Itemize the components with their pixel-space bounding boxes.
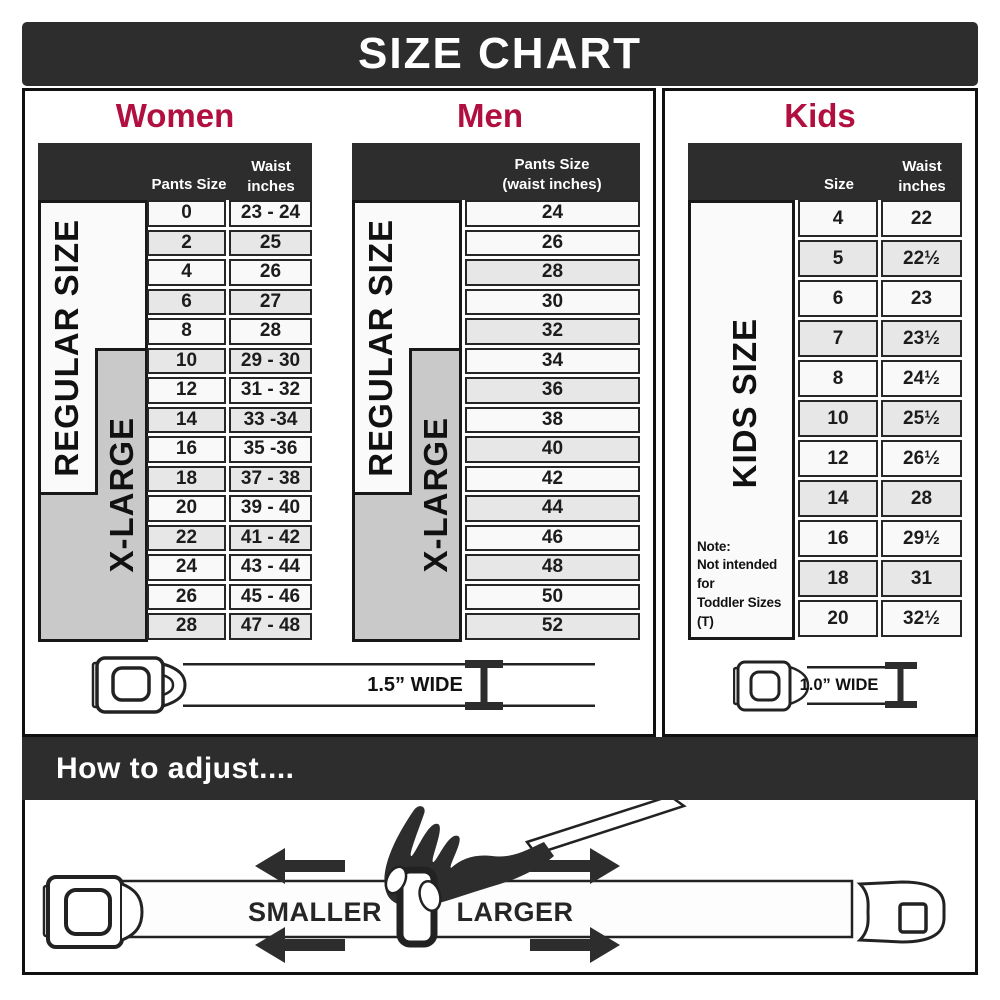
- toddler-note: Note: Not intended for Toddler Sizes (T): [697, 538, 789, 632]
- size-cell: 6: [147, 289, 226, 316]
- size-cell: 32: [465, 318, 640, 345]
- size-cell: 14: [147, 407, 226, 434]
- width-measure-icon: [885, 662, 917, 708]
- table-row: 18 37 - 38: [147, 466, 312, 493]
- table-row: 40: [465, 436, 640, 463]
- size-chart-page: SIZE CHART Women Men Kids Pants Size Wai…: [0, 0, 1000, 1000]
- table-row: 36: [465, 377, 640, 404]
- size-cell: 48: [465, 554, 640, 581]
- waist-cell: 22: [881, 200, 962, 237]
- women-table-header: Pants Size Waist inches: [38, 143, 312, 200]
- kids-table-header: Size Waist inches: [688, 143, 962, 200]
- table-row: 50: [465, 584, 640, 611]
- size-cell: 5: [798, 240, 878, 277]
- size-cell: 7: [798, 320, 878, 357]
- buckle-window: [113, 668, 149, 700]
- waist-cell: 43 - 44: [229, 554, 312, 581]
- size-cell: 42: [465, 466, 640, 493]
- size-cell: 20: [147, 495, 226, 522]
- table-row: 44: [465, 495, 640, 522]
- waist-cell: 32½: [881, 600, 962, 637]
- table-row: 6 23: [798, 280, 962, 317]
- women-heading: Women: [60, 99, 290, 132]
- size-cell: 44: [465, 495, 640, 522]
- table-row: 28: [465, 259, 640, 286]
- size-cell: 4: [147, 259, 226, 286]
- size-cell: 12: [147, 377, 226, 404]
- size-cell: 8: [798, 360, 878, 397]
- table-row: 12 31 - 32: [147, 377, 312, 404]
- table-row: 18 31: [798, 560, 962, 597]
- women-col-waist: Waist inches: [229, 157, 313, 196]
- table-row: 42: [465, 466, 640, 493]
- men-table-header: Pants Size (waist inches): [352, 143, 640, 200]
- page-title: SIZE CHART: [358, 29, 642, 79]
- waist-cell: 25½: [881, 400, 962, 437]
- kids-table-rows: 4 22 5 22½ 6 23 7 23½ 8 24½ 10 25½ 12 26…: [798, 200, 962, 640]
- table-row: 20 32½: [798, 600, 962, 637]
- larger-label: LARGER: [455, 897, 575, 928]
- table-row: 4 22: [798, 200, 962, 237]
- arrow-left-icon: [255, 848, 345, 884]
- size-cell: 10: [147, 348, 226, 375]
- women-xlarge-region-top: [95, 348, 148, 495]
- size-cell: 22: [147, 525, 226, 552]
- women-table-rows: 0 23 - 24 2 25 4 26 6 27 8 28 10 29 - 30…: [147, 200, 312, 643]
- waist-cell: 35 -36: [229, 436, 312, 463]
- men-heading: Men: [375, 99, 605, 132]
- pulled-strap: [527, 800, 684, 854]
- kids-size-label: KIDS SIZE: [726, 318, 764, 488]
- waist-cell: 45 - 46: [229, 584, 312, 611]
- women-regular-region-bottom: [38, 348, 95, 495]
- kids-belt-width-label: 1.0” WIDE: [798, 676, 880, 695]
- table-row: 26 45 - 46: [147, 584, 312, 611]
- size-cell: 10: [798, 400, 878, 437]
- waist-cell: 27: [229, 289, 312, 316]
- size-cell: 18: [147, 466, 226, 493]
- buckle-window: [66, 890, 110, 934]
- table-row: 22 41 - 42: [147, 525, 312, 552]
- size-cell: 6: [798, 280, 878, 317]
- size-cell: 50: [465, 584, 640, 611]
- size-cell: 52: [465, 613, 640, 640]
- table-row: 24 43 - 44: [147, 554, 312, 581]
- size-cell: 16: [147, 436, 226, 463]
- table-row: 28 47 - 48: [147, 613, 312, 640]
- size-cell: 26: [147, 584, 226, 611]
- table-row: 52: [465, 613, 640, 640]
- waist-cell: 31 - 32: [229, 377, 312, 404]
- women-col-pants-size: Pants Size: [139, 175, 239, 195]
- table-row: 2 25: [147, 230, 312, 257]
- kids-col-waist: Waist inches: [882, 157, 962, 196]
- women-regular-region-top: [38, 200, 148, 348]
- size-cell: 8: [147, 318, 226, 345]
- table-row: 20 39 - 40: [147, 495, 312, 522]
- size-cell: 36: [465, 377, 640, 404]
- strap-bottom-edge: [183, 705, 595, 708]
- waist-cell: 41 - 42: [229, 525, 312, 552]
- tongue-slot: [900, 904, 926, 932]
- size-cell: 18: [798, 560, 878, 597]
- waist-cell: 39 - 40: [229, 495, 312, 522]
- waist-cell: 29 - 30: [229, 348, 312, 375]
- men-xlarge-region-top: [409, 348, 462, 495]
- kids-heading: Kids: [700, 99, 940, 132]
- table-row: 26: [465, 230, 640, 257]
- adjust-belt-illustration: [22, 800, 978, 975]
- smaller-label: SMALLER: [248, 897, 368, 928]
- table-row: 16 29½: [798, 520, 962, 557]
- waist-cell: 29½: [881, 520, 962, 557]
- adult-belt-width-label: 1.5” WIDE: [363, 674, 467, 697]
- title-bar: SIZE CHART: [22, 22, 978, 86]
- waist-cell: 28: [229, 318, 312, 345]
- size-cell: 24: [147, 554, 226, 581]
- waist-cell: 33 -34: [229, 407, 312, 434]
- table-row: 10 29 - 30: [147, 348, 312, 375]
- size-cell: 2: [147, 230, 226, 257]
- kids-size-label-box: KIDS SIZE Note: Not intended for Toddler…: [688, 200, 795, 640]
- width-measure-icon: [465, 660, 503, 710]
- size-cell: 28: [465, 259, 640, 286]
- table-row: 8 28: [147, 318, 312, 345]
- table-row: 34: [465, 348, 640, 375]
- table-row: 48: [465, 554, 640, 581]
- table-row: 10 25½: [798, 400, 962, 437]
- table-row: 32: [465, 318, 640, 345]
- table-row: 6 27: [147, 289, 312, 316]
- men-regular-region-bottom: [352, 348, 409, 495]
- size-cell: 40: [465, 436, 640, 463]
- table-row: 5 22½: [798, 240, 962, 277]
- waist-cell: 23: [881, 280, 962, 317]
- buckle-window: [751, 672, 779, 700]
- size-cell: 12: [798, 440, 878, 477]
- size-cell: 4: [798, 200, 878, 237]
- how-to-adjust-bar: How to adjust....: [22, 737, 978, 800]
- table-row: 24: [465, 200, 640, 227]
- adult-belt-illustration: [90, 652, 610, 718]
- table-row: 16 35 -36: [147, 436, 312, 463]
- waist-cell: 23½: [881, 320, 962, 357]
- waist-cell: 28: [881, 480, 962, 517]
- men-col-pants-size: Pants Size (waist inches): [472, 155, 632, 194]
- men-regular-region-top: [352, 200, 462, 348]
- kids-col-size: Size: [799, 175, 879, 195]
- waist-cell: 22½: [881, 240, 962, 277]
- table-row: 8 24½: [798, 360, 962, 397]
- waist-cell: 37 - 38: [229, 466, 312, 493]
- size-cell: 0: [147, 200, 226, 227]
- table-row: 46: [465, 525, 640, 552]
- table-row: 4 26: [147, 259, 312, 286]
- size-cell: 20: [798, 600, 878, 637]
- table-row: 7 23½: [798, 320, 962, 357]
- size-cell: 38: [465, 407, 640, 434]
- size-cell: 34: [465, 348, 640, 375]
- table-row: 12 26½: [798, 440, 962, 477]
- table-row: 14 28: [798, 480, 962, 517]
- waist-cell: 25: [229, 230, 312, 257]
- waist-cell: 47 - 48: [229, 613, 312, 640]
- table-row: 30: [465, 289, 640, 316]
- how-to-adjust-heading: How to adjust....: [56, 752, 295, 786]
- waist-cell: 24½: [881, 360, 962, 397]
- waist-cell: 26½: [881, 440, 962, 477]
- table-row: 38: [465, 407, 640, 434]
- men-xlarge-region-bottom: [352, 495, 462, 642]
- table-row: 14 33 -34: [147, 407, 312, 434]
- waist-cell: 26: [229, 259, 312, 286]
- size-cell: 26: [465, 230, 640, 257]
- size-cell: 28: [147, 613, 226, 640]
- size-cell: 16: [798, 520, 878, 557]
- men-table-rows: 24 26 28 30 32 34 36 38 40 42 44 46: [465, 200, 640, 643]
- size-cell: 24: [465, 200, 640, 227]
- size-cell: 14: [798, 480, 878, 517]
- women-xlarge-region-bottom: [38, 495, 148, 642]
- strap-top-edge: [183, 663, 595, 666]
- size-cell: 30: [465, 289, 640, 316]
- waist-cell: 31: [881, 560, 962, 597]
- table-row: 0 23 - 24: [147, 200, 312, 227]
- size-cell: 46: [465, 525, 640, 552]
- waist-cell: 23 - 24: [229, 200, 312, 227]
